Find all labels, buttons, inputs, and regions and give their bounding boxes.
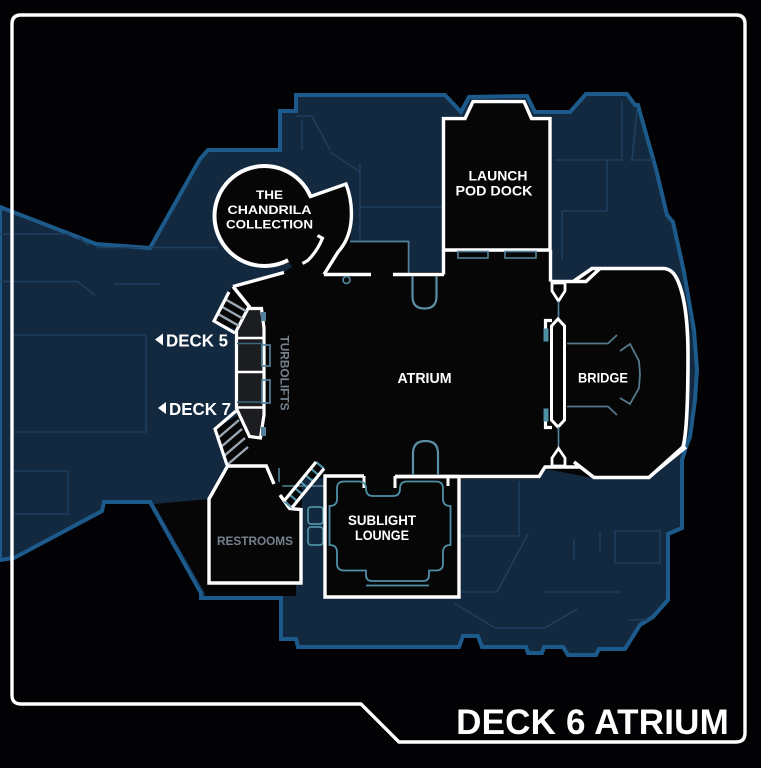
svg-text:COLLECTION: COLLECTION <box>226 220 313 232</box>
svg-text:THE: THE <box>256 190 283 202</box>
svg-text:LAUNCH: LAUNCH <box>469 169 528 184</box>
svg-text:BRIDGE: BRIDGE <box>578 370 628 386</box>
svg-text:DECK 7: DECK 7 <box>169 399 231 419</box>
svg-text:SUBLIGHT: SUBLIGHT <box>348 513 417 528</box>
svg-text:POD DOCK: POD DOCK <box>456 184 533 199</box>
svg-text:DECK 6 ATRIUM: DECK 6 ATRIUM <box>456 703 729 742</box>
svg-text:DECK 5: DECK 5 <box>166 331 228 351</box>
svg-text:TURBOLIFTS: TURBOLIFTS <box>278 336 290 411</box>
svg-text:RESTROOMS: RESTROOMS <box>217 534 293 548</box>
svg-text:CHANDRILA: CHANDRILA <box>228 205 312 217</box>
svg-text:ATRIUM: ATRIUM <box>398 371 452 387</box>
svg-text:LOUNGE: LOUNGE <box>355 528 409 543</box>
